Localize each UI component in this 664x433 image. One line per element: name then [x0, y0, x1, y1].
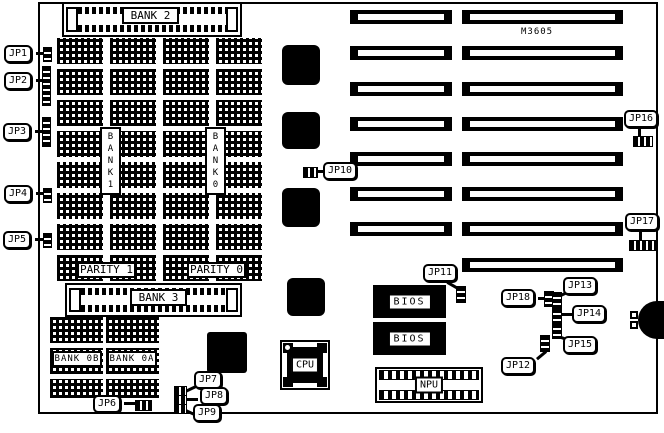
- isa-slot-segment: [350, 187, 452, 201]
- isa-slot-segment: [350, 222, 452, 236]
- isa-slot-segment: [350, 82, 452, 96]
- isa-slot-segment: [462, 152, 623, 166]
- jp2-label: JP2: [4, 72, 32, 90]
- isa-slot-segment: [350, 46, 452, 60]
- jp14-label: JP14: [572, 305, 606, 323]
- jp11-label: JP11: [423, 264, 457, 282]
- jp3-label: JP3: [3, 123, 31, 141]
- jp8-label: JP8: [200, 387, 228, 405]
- jp6-jumper: [135, 400, 152, 411]
- bank1-label: B A N K 1: [100, 127, 121, 195]
- simm-latch: [66, 7, 78, 32]
- bank0a-label: BANK 0A: [107, 351, 157, 367]
- motherboard-diagram: BANK 2 B A N K 1 B A N K 0 PARITY 1 PARI…: [0, 0, 664, 433]
- cpu-pin1-marker: [285, 345, 290, 350]
- dram-column: [163, 38, 209, 282]
- dram-column: [57, 38, 103, 282]
- jp10-jumper: [303, 167, 318, 178]
- simm-latch: [226, 7, 238, 32]
- isa-slot-segment: [462, 10, 623, 24]
- jp15-label: JP15: [563, 336, 597, 354]
- bios-chip-top: BIOS: [373, 285, 446, 318]
- jp10-label: JP10: [323, 162, 357, 180]
- npu-label: NPU: [415, 377, 443, 394]
- bios-bottom-label: BIOS: [389, 332, 429, 345]
- jp18-label: JP18: [501, 289, 535, 307]
- isa-slot-segment: [462, 82, 623, 96]
- jp2-jumper: [42, 66, 51, 106]
- jp9-jumper: [174, 404, 187, 414]
- isa-slot-segment: [350, 117, 452, 131]
- jp15-jumper: [552, 323, 562, 339]
- isa-slot-segment: [462, 187, 623, 201]
- isa-slot-segment: [462, 46, 623, 60]
- jp3-jumper: [42, 117, 51, 147]
- isa-slot-segment: [350, 10, 452, 24]
- jp6-label: JP6: [93, 395, 121, 413]
- parity1-label: PARITY 1: [77, 262, 136, 278]
- jp6-pointer: [124, 402, 135, 405]
- simm-pins: [81, 305, 226, 312]
- keyboard-connector-pin: [630, 311, 638, 319]
- bios-chip-bottom: BIOS: [373, 322, 446, 355]
- simm-latch: [226, 288, 238, 312]
- jp16-label: JP16: [624, 110, 658, 128]
- logic-chip-5: [207, 332, 247, 373]
- bios-top-label: BIOS: [389, 295, 429, 308]
- cpu-socket: CPU: [280, 340, 330, 390]
- jp12-jumper: [540, 335, 550, 352]
- jp17-label: JP17: [625, 213, 659, 231]
- bank3-label: BANK 3: [130, 289, 187, 306]
- simm-latch: [69, 288, 81, 312]
- jp11-jumper: [456, 286, 466, 303]
- isa-slot-segment: [462, 258, 623, 272]
- logic-chip-3: [282, 188, 320, 227]
- bank0-label: B A N K 0: [205, 127, 226, 195]
- logic-chip-4: [287, 278, 325, 316]
- jp12-label: JP12: [501, 357, 535, 375]
- logic-chip-1: [282, 45, 320, 85]
- simm-pins: [78, 25, 226, 32]
- jp4-label: JP4: [4, 185, 32, 203]
- logic-chip-2: [282, 112, 320, 149]
- isa-slot-segment: [462, 222, 623, 236]
- jp9-label: JP9: [193, 404, 221, 422]
- parity0-label: PARITY 0: [187, 262, 246, 278]
- jp4-jumper: [43, 188, 52, 203]
- jp13-label: JP13: [563, 277, 597, 295]
- jp17-jumper: [629, 240, 657, 251]
- jp5-jumper: [43, 233, 52, 248]
- isa-slot-segment: [462, 117, 623, 131]
- isa-slot-segment: [350, 152, 452, 166]
- keyboard-connector-pin: [630, 321, 638, 329]
- model-number: M3605: [521, 27, 553, 37]
- jp16-jumper: [633, 136, 653, 147]
- cpu-label: CPU: [292, 358, 318, 373]
- bank0b-label: BANK 0B: [52, 351, 102, 367]
- jp1-label: JP1: [4, 45, 32, 63]
- jp1-jumper: [43, 47, 52, 62]
- bank2-label: BANK 2: [122, 7, 179, 24]
- jp5-label: JP5: [3, 231, 31, 249]
- npu-socket: NPU: [375, 367, 483, 403]
